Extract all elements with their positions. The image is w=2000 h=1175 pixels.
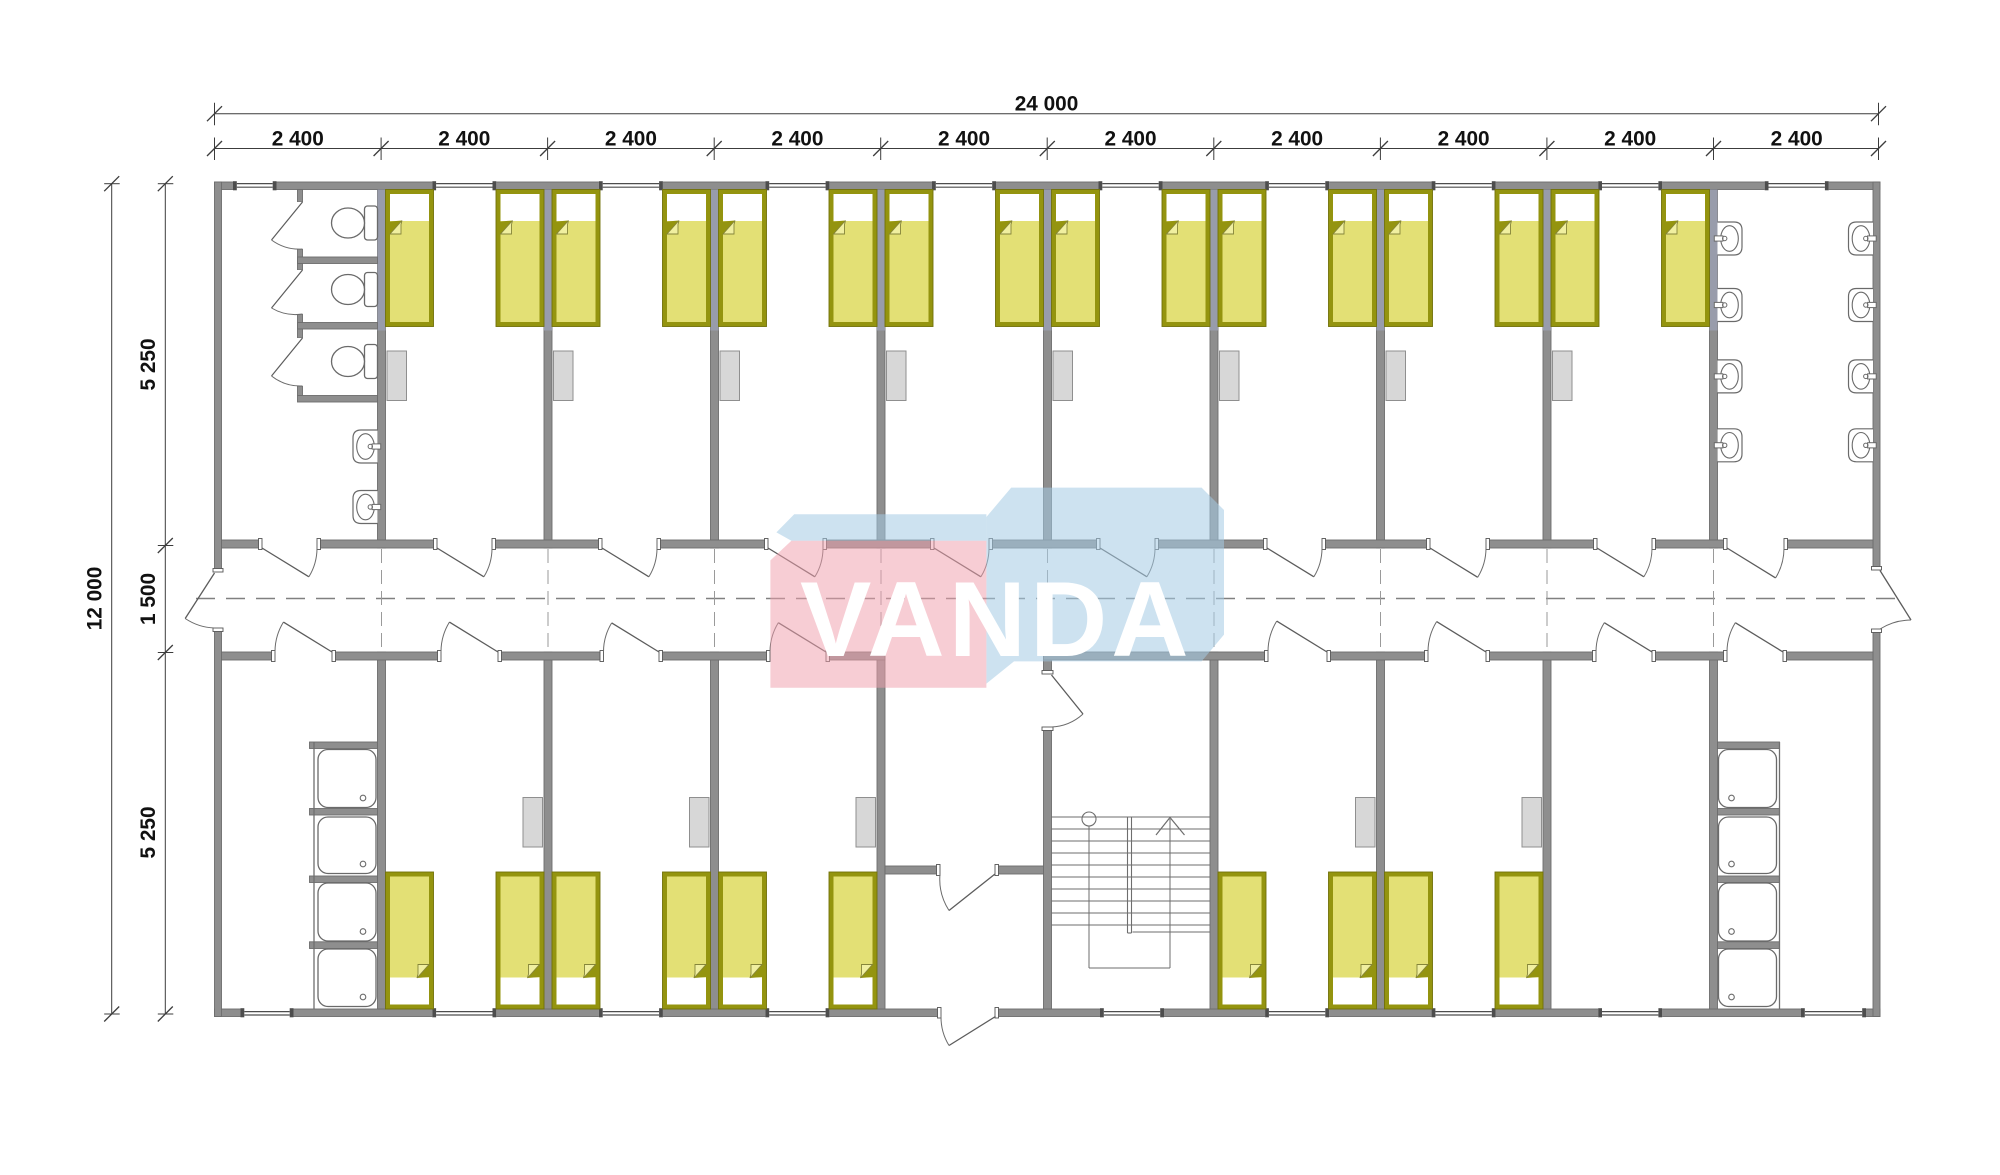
svg-text:2 400: 2 400 bbox=[1104, 128, 1156, 151]
svg-text:1 500: 1 500 bbox=[137, 573, 160, 625]
svg-text:12 000: 12 000 bbox=[84, 567, 107, 631]
svg-text:2 400: 2 400 bbox=[771, 128, 823, 151]
svg-text:24 000: 24 000 bbox=[1015, 93, 1079, 116]
svg-text:2 400: 2 400 bbox=[938, 128, 990, 151]
svg-text:2 400: 2 400 bbox=[1771, 128, 1823, 151]
svg-text:2 400: 2 400 bbox=[272, 128, 324, 151]
svg-text:2 400: 2 400 bbox=[605, 128, 657, 151]
svg-text:VANDA: VANDA bbox=[800, 559, 1193, 679]
svg-text:2 400: 2 400 bbox=[1271, 128, 1323, 151]
svg-text:5 250: 5 250 bbox=[137, 338, 160, 390]
svg-text:2 400: 2 400 bbox=[1438, 128, 1490, 151]
svg-text:2 400: 2 400 bbox=[1604, 128, 1656, 151]
svg-text:2 400: 2 400 bbox=[438, 128, 490, 151]
svg-text:5 250: 5 250 bbox=[137, 806, 160, 858]
